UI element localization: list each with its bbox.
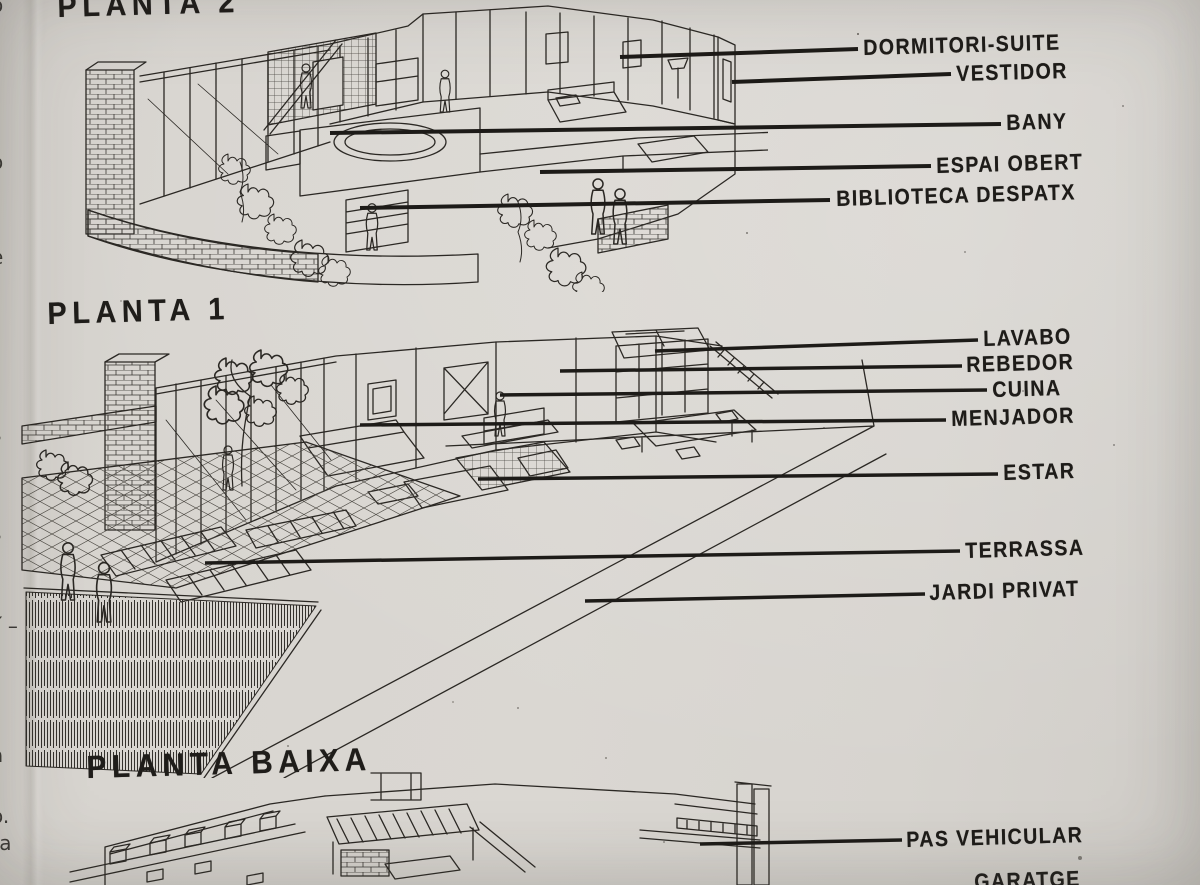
margin-text-fragment: ra <box>0 833 11 853</box>
end-wall <box>718 37 735 124</box>
tall-pillar <box>735 782 771 885</box>
room-label-dormitori-suite: DORMITORI-SUITE <box>863 31 1061 58</box>
deck-edges <box>212 360 886 778</box>
room-label-cuina: CUINA <box>992 377 1062 401</box>
scan-specks <box>0 0 2 2</box>
stairs <box>710 342 778 398</box>
margin-text-fragment: í – <box>0 616 18 636</box>
room-label-pas-vehicular: PAS VEHICULAR <box>906 824 1084 851</box>
margin-text-fragment: o <box>0 0 3 15</box>
brick-pier <box>86 62 146 234</box>
floor-lamp <box>668 58 688 98</box>
right-wing <box>640 794 760 848</box>
sofa <box>638 136 708 162</box>
axonometric-drawing-planta-1 <box>16 300 891 778</box>
axonometric-drawing-planta-2 <box>78 4 768 292</box>
bed <box>548 82 626 122</box>
room-label-vestidor: VESTIDOR <box>956 60 1068 85</box>
margin-text-fragment: s <box>0 523 1 543</box>
scanned-page: PLANTA 2 PLANTA 1 PLANTA BAIXA <box>0 0 1200 885</box>
open-platform <box>480 120 768 253</box>
room-label-terrassa: TERRASSA <box>965 537 1085 562</box>
room-label-espai-obert: ESPAI OBERT <box>936 151 1084 177</box>
room-label-menjador: MENJADOR <box>951 405 1075 430</box>
left-wing-shelves <box>70 796 325 885</box>
margin-text-fragment: a <box>0 745 3 765</box>
room-label-lavabo: LAVABO <box>983 326 1072 350</box>
room-label-bany: BANY <box>1006 110 1068 134</box>
margin-text-fragment: s <box>0 424 1 444</box>
margin-text-fragment: e <box>0 247 3 267</box>
room-label-garatge: GARATGE <box>974 868 1081 885</box>
room-label-biblioteca-despatx: BIBLIOTECA DESPATX <box>836 181 1076 210</box>
margin-text-fragment: o. <box>0 806 9 826</box>
room-label-jardi-privat: JARDI PRIVAT <box>929 578 1080 604</box>
kitchen <box>456 420 570 490</box>
back-wall <box>330 6 718 124</box>
room-label-estar: ESTAR <box>1003 460 1076 484</box>
room-label-rebedor: REBEDOR <box>966 351 1074 376</box>
margin-text-fragment: o <box>0 152 3 172</box>
center-volume <box>325 773 675 879</box>
section-title-planta-1: PLANTA 1 <box>47 291 230 332</box>
